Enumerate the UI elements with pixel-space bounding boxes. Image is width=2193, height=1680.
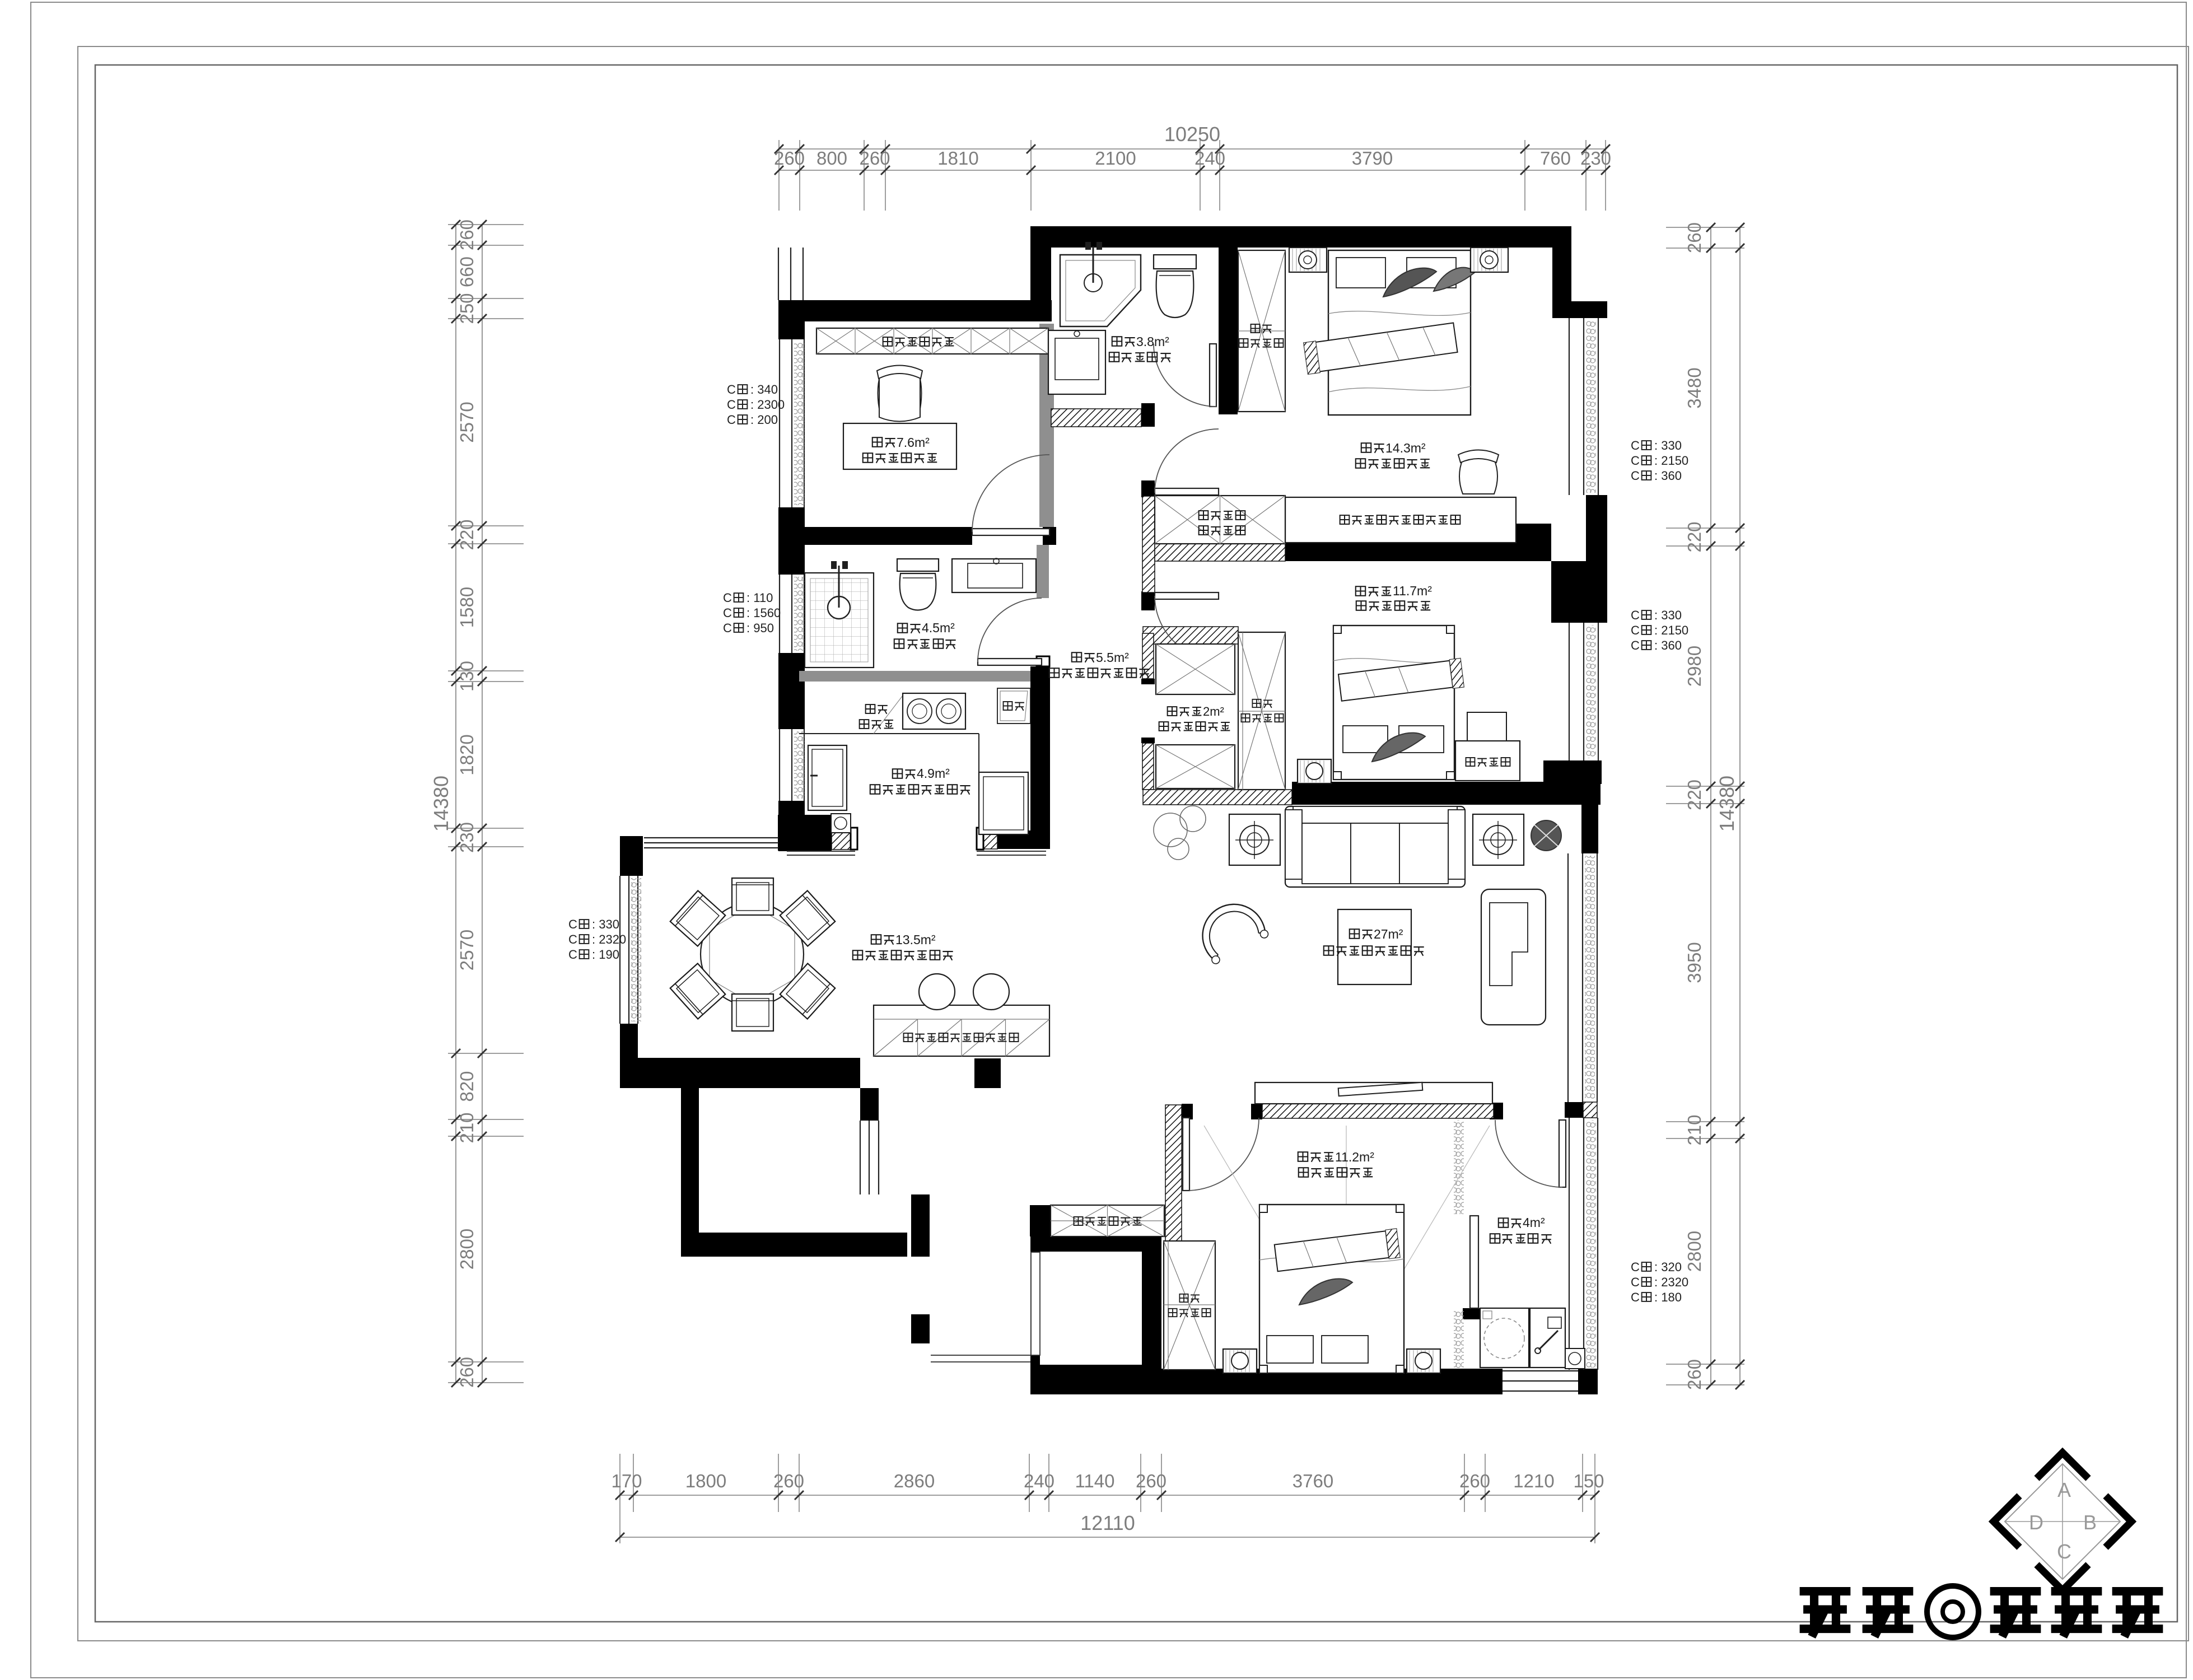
svg-text:4.5m²: 4.5m²	[922, 620, 955, 635]
svg-text:A: A	[2057, 1478, 2071, 1501]
svg-text:: 360: : 360	[1654, 638, 1682, 652]
svg-text:: 1560: : 1560	[746, 606, 781, 620]
svg-text:260: 260	[1459, 1471, 1490, 1491]
svg-text:1820: 1820	[456, 734, 477, 775]
svg-text:: 330: : 330	[1654, 608, 1682, 622]
svg-text:B: B	[2083, 1511, 2097, 1534]
svg-text:2m²: 2m²	[1203, 704, 1224, 718]
svg-text:C: C	[1631, 469, 1640, 483]
svg-text:: 2320: : 2320	[1654, 1275, 1688, 1289]
svg-text:C: C	[568, 948, 577, 962]
svg-text:5.5m²: 5.5m²	[1096, 650, 1129, 665]
svg-text:1140: 1140	[1075, 1471, 1115, 1491]
svg-text:: 2150: : 2150	[1654, 623, 1688, 637]
svg-text:C: C	[1631, 1260, 1640, 1274]
svg-text:170: 170	[611, 1471, 642, 1491]
svg-text:C: C	[1631, 1275, 1640, 1289]
svg-text:260: 260	[773, 1471, 804, 1491]
svg-text:27m²: 27m²	[1374, 927, 1403, 941]
svg-text:C: C	[1631, 623, 1640, 637]
svg-text:250: 250	[456, 293, 477, 324]
svg-text:2800: 2800	[456, 1229, 477, 1270]
svg-text:2570: 2570	[456, 930, 477, 970]
svg-text:C: C	[1631, 638, 1640, 652]
svg-text:13.5m²: 13.5m²	[895, 932, 936, 947]
svg-text:C: C	[723, 606, 732, 620]
svg-text:1810: 1810	[937, 148, 978, 169]
svg-text:: 190: : 190	[592, 948, 619, 962]
svg-text:: 330: : 330	[592, 917, 619, 931]
svg-text:: 360: : 360	[1654, 469, 1682, 483]
svg-text:: 110: : 110	[746, 591, 773, 605]
svg-text:C: C	[723, 621, 732, 635]
svg-text:C: C	[723, 591, 732, 605]
svg-text:3480: 3480	[1684, 367, 1705, 408]
svg-text:2800: 2800	[1684, 1231, 1705, 1272]
svg-text:C: C	[1631, 608, 1640, 622]
svg-text:C: C	[568, 932, 577, 946]
svg-text:210: 210	[456, 1112, 477, 1143]
svg-text:2980: 2980	[1684, 646, 1705, 687]
svg-text:240: 240	[1024, 1471, 1054, 1491]
svg-text:C: C	[1631, 438, 1640, 452]
svg-text:260: 260	[1684, 1359, 1705, 1390]
svg-text:C: C	[2057, 1540, 2071, 1563]
svg-text:1580: 1580	[456, 587, 477, 628]
svg-text:11.2m²: 11.2m²	[1335, 1150, 1374, 1164]
svg-text:12110: 12110	[1080, 1511, 1135, 1534]
svg-text:2860: 2860	[894, 1471, 935, 1491]
svg-text:210: 210	[1684, 1114, 1705, 1145]
svg-text:230: 230	[456, 822, 477, 853]
svg-text:C: C	[727, 413, 736, 427]
svg-text:220: 220	[1684, 521, 1705, 552]
svg-text:3950: 3950	[1684, 942, 1705, 983]
svg-text:10250: 10250	[1164, 123, 1220, 146]
svg-text:220: 220	[456, 519, 477, 550]
svg-text:3760: 3760	[1293, 1471, 1333, 1491]
svg-text:: 2150: : 2150	[1654, 454, 1688, 468]
svg-text:: 340: : 340	[750, 382, 778, 396]
svg-text:760: 760	[1540, 148, 1571, 169]
svg-text:14.3m²: 14.3m²	[1385, 441, 1426, 455]
svg-text:260: 260	[456, 1357, 477, 1388]
svg-text:1800: 1800	[685, 1471, 726, 1491]
svg-text:820: 820	[456, 1071, 477, 1102]
svg-text:220: 220	[1684, 780, 1705, 810]
svg-text:4.9m²: 4.9m²	[917, 766, 950, 781]
svg-text:C: C	[1631, 1290, 1640, 1304]
svg-text:C: C	[727, 398, 736, 412]
svg-text:: 320: : 320	[1654, 1260, 1682, 1274]
svg-text:11.7m²: 11.7m²	[1393, 584, 1432, 598]
svg-text:C: C	[727, 382, 736, 396]
svg-text:: 2320: : 2320	[592, 932, 626, 946]
svg-text:4m²: 4m²	[1523, 1215, 1545, 1230]
svg-text:800: 800	[816, 148, 847, 169]
svg-text:2570: 2570	[456, 402, 477, 442]
svg-text:1210: 1210	[1513, 1471, 1554, 1491]
svg-text:260: 260	[859, 148, 890, 169]
svg-text:260: 260	[1684, 222, 1705, 253]
svg-text:260: 260	[456, 220, 477, 250]
svg-text:D: D	[2029, 1511, 2043, 1534]
svg-text:C: C	[1631, 454, 1640, 468]
svg-text:3.8m²: 3.8m²	[1136, 334, 1169, 349]
svg-text:240: 240	[1195, 148, 1225, 169]
svg-text:260: 260	[1136, 1471, 1167, 1491]
svg-text:130: 130	[456, 661, 477, 692]
svg-text:: 950: : 950	[746, 621, 774, 635]
svg-text:7.6m²: 7.6m²	[897, 435, 930, 450]
svg-text:150: 150	[1573, 1471, 1604, 1491]
svg-text:: 330: : 330	[1654, 438, 1682, 452]
svg-text:260: 260	[774, 148, 805, 169]
svg-text:660: 660	[456, 256, 477, 287]
svg-text:: 200: : 200	[750, 413, 778, 427]
svg-text:: 180: : 180	[1654, 1290, 1682, 1304]
svg-text:2100: 2100	[1095, 148, 1136, 169]
svg-text:14380: 14380	[430, 776, 452, 832]
svg-text:3790: 3790	[1352, 148, 1393, 169]
svg-text:C: C	[568, 917, 577, 931]
svg-text:230: 230	[1580, 148, 1611, 169]
